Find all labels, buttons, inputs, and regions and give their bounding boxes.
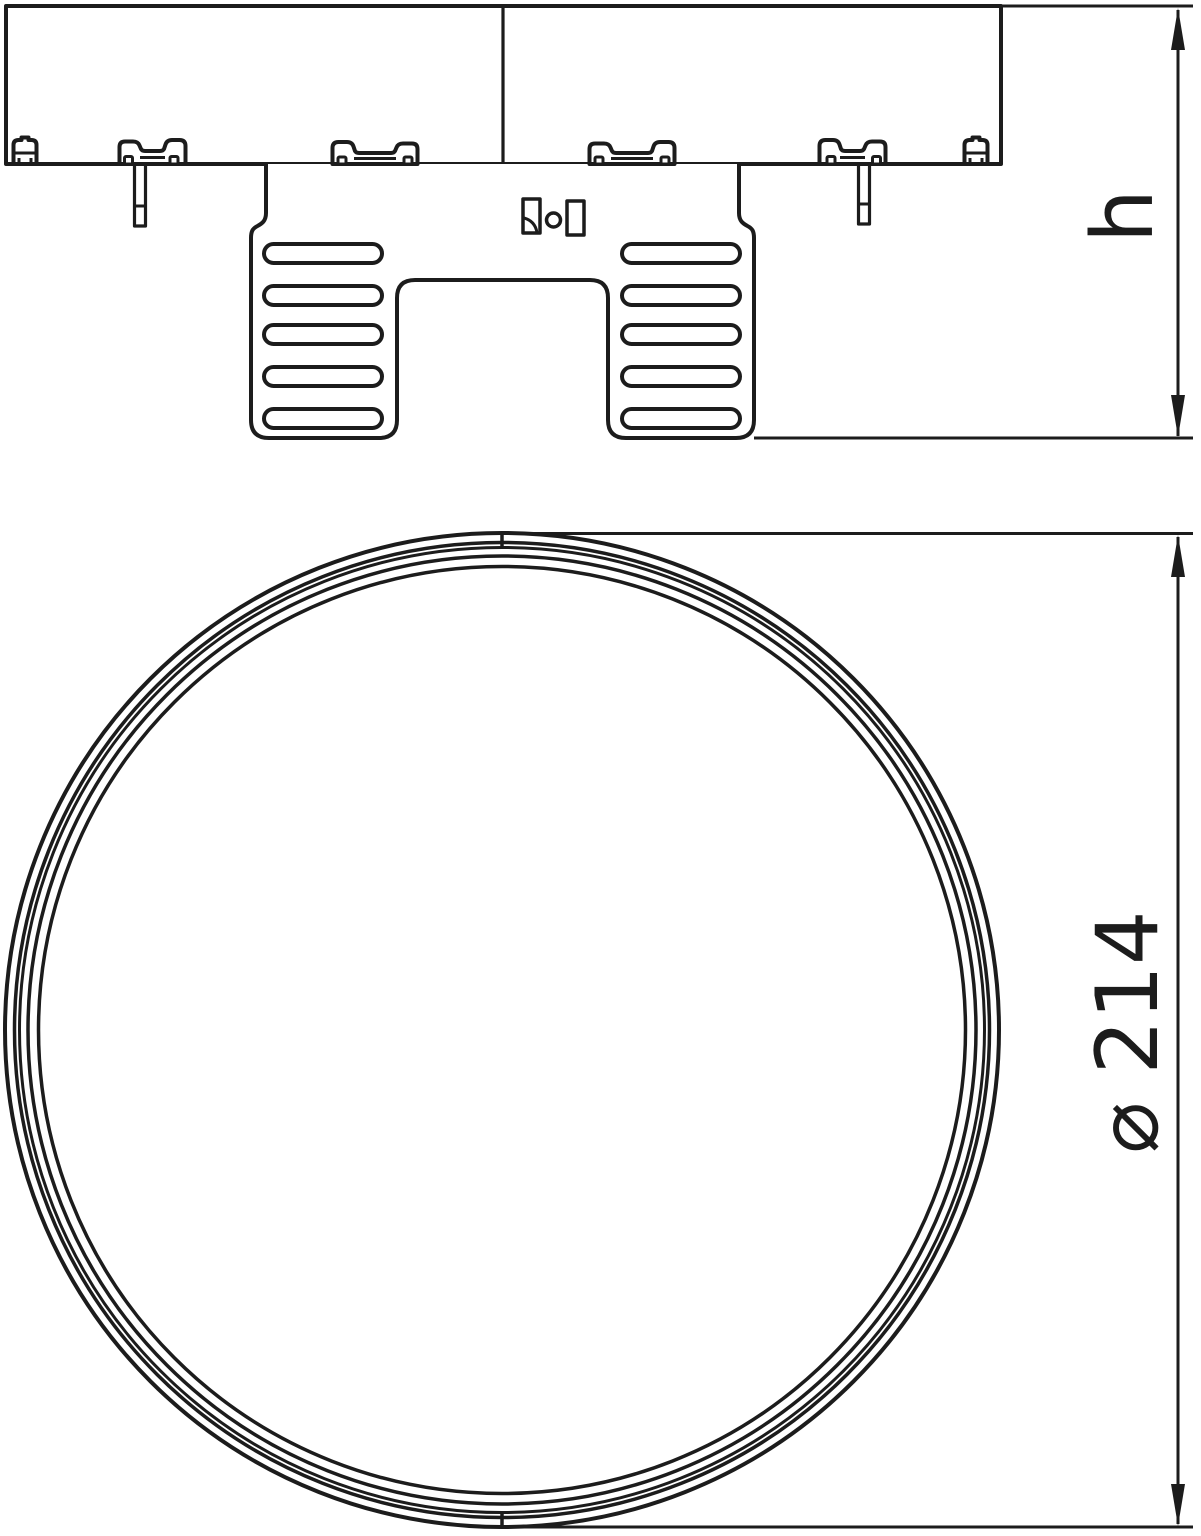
- lock-plate-left: [523, 199, 540, 233]
- arrowhead-down-icon: [1171, 1484, 1185, 1526]
- end-clip-left: [14, 138, 37, 165]
- end-clip-right: [965, 138, 988, 165]
- cassette-ring: [28, 556, 976, 1504]
- round-cassette-drawing: h ⌀ 214: [0, 0, 1201, 1536]
- clip-foot: [873, 157, 881, 165]
- drawing-lines: [5, 6, 1193, 1528]
- clip-foot: [125, 157, 133, 165]
- arrowhead-up-icon: [1171, 535, 1185, 577]
- cassette-body: [251, 164, 754, 438]
- plan-view-circle: [5, 532, 1193, 1528]
- technical-drawing-page: h ⌀ 214: [0, 0, 1201, 1536]
- fixing-pin-left: [135, 164, 146, 226]
- clip-outline: [14, 138, 37, 165]
- cassette-outer-ring: [5, 533, 999, 1527]
- side-elevation-view: [6, 6, 1193, 438]
- cassette-inner-ring: [39, 567, 966, 1494]
- lock-plate-right: [567, 201, 584, 235]
- clip-foot: [404, 157, 412, 164]
- height-dimension-label: h: [1074, 189, 1173, 243]
- cassette-ring: [20, 548, 985, 1513]
- clip-foot: [338, 157, 346, 164]
- arrowhead-down-icon: [1171, 395, 1185, 437]
- clip-outline: [965, 138, 988, 165]
- clip-foot: [170, 157, 178, 165]
- clip-foot: [595, 157, 603, 164]
- pin-shaft: [135, 164, 146, 226]
- fixing-pin-right: [859, 164, 870, 224]
- clip-foot: [661, 157, 669, 164]
- diameter-dimension-label: ⌀ 214: [1078, 910, 1178, 1153]
- arrowhead-up-icon: [1171, 8, 1185, 50]
- clip-foot: [827, 157, 835, 165]
- pin-shaft: [859, 164, 870, 224]
